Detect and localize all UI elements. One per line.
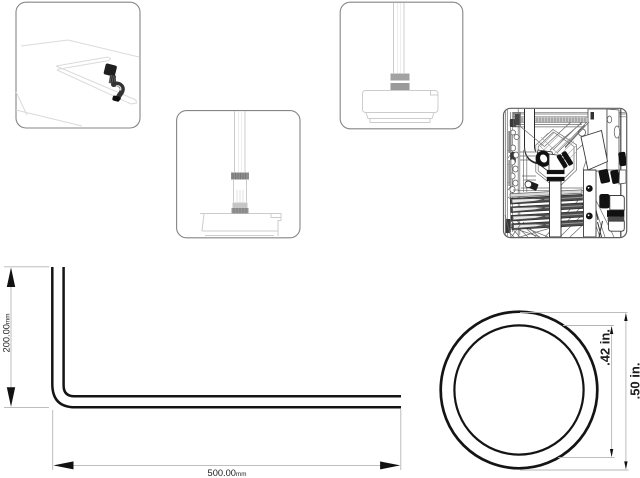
- svg-text:.50 in.: .50 in.: [628, 363, 640, 400]
- svg-text:.42 in.: .42 in.: [598, 329, 613, 366]
- svg-text:500.00mm: 500.00mm: [208, 468, 247, 478]
- svg-text:200.00mm: 200.00mm: [2, 314, 12, 353]
